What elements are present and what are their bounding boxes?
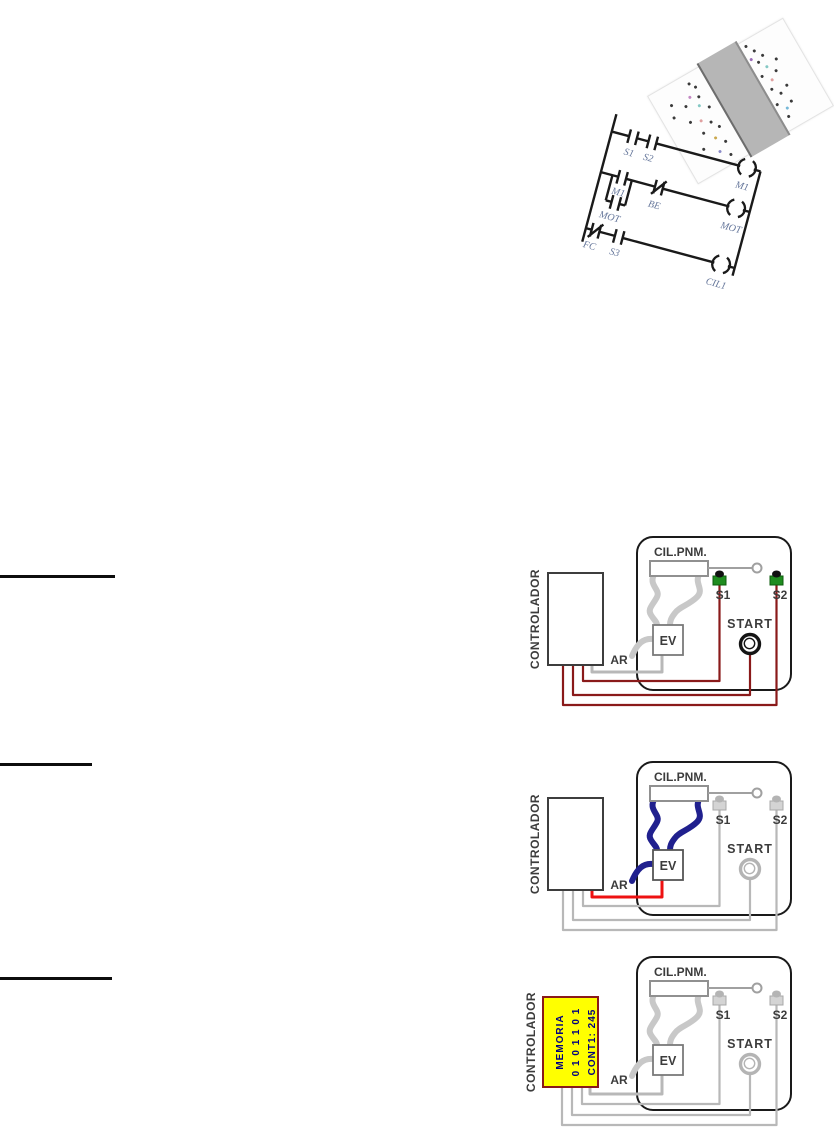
rod-tip: [753, 564, 762, 573]
controller-diagram-state1: CONTROLADOR CIL.PNM. S1 S2 START EV AR: [513, 527, 818, 722]
heading-underline-1: [0, 575, 115, 578]
memory-bits: 0 1 0 1 1 0 1: [571, 1008, 582, 1077]
air-label: AR: [610, 878, 628, 892]
ladder-label-cil1: CIL1: [704, 276, 727, 292]
sensor-s2-tip: [772, 796, 781, 803]
controller-diagram-state2: CONTROLADOR CIL.PNM. S1 S2 START EV AR: [513, 752, 818, 947]
pneumatic-cylinder: [650, 981, 708, 996]
pcb-components-right: [744, 44, 748, 48]
air-supply-tube: [632, 864, 653, 881]
controller-label: CONTROLADOR: [524, 992, 538, 1092]
controller-label: CONTROLADOR: [528, 794, 542, 894]
machine-panel: [637, 762, 791, 915]
pneumatic-cylinder: [650, 786, 708, 801]
sensor-s1-label: S1: [716, 813, 731, 827]
valve-label: EV: [660, 859, 677, 873]
start-button[interactable]: [741, 860, 760, 879]
sensor-s1-label: S1: [716, 1008, 731, 1022]
sensor-s2-tip: [772, 991, 781, 998]
air-supply-tube: [632, 1059, 653, 1076]
rod-tip: [753, 789, 762, 798]
ladder-label-be: BE: [647, 199, 662, 213]
heading-underline-3: [0, 977, 112, 980]
sensor-s1-label: S1: [716, 588, 731, 602]
memory-counter: CONT1: 245: [587, 1009, 598, 1076]
sensor-s2-tip: [772, 571, 781, 578]
rod-tip: [753, 984, 762, 993]
heading-underline-2: [0, 763, 92, 766]
controller-box: [548, 798, 603, 890]
ladder-label-m1-coil: M1: [733, 179, 750, 193]
start-label: START: [727, 842, 773, 856]
start-button[interactable]: [741, 1055, 760, 1074]
machine-panel: [637, 957, 791, 1110]
ladder-label-s1: S1: [622, 147, 635, 160]
ladder-label-s3: S3: [608, 246, 621, 259]
pneumatic-cylinder: [650, 561, 708, 576]
cylinder-label: CIL.PNM.: [654, 770, 707, 784]
valve-label: EV: [660, 1054, 677, 1068]
valve-label: EV: [660, 634, 677, 648]
cylinder-label: CIL.PNM.: [654, 965, 707, 979]
controller-box: [548, 573, 603, 665]
air-label: AR: [610, 1073, 628, 1087]
sensor-s1-tip: [715, 796, 724, 803]
ladder-label-s2: S2: [642, 152, 655, 165]
sensor-s2-label: S2: [773, 813, 788, 827]
ladder-label-mot-contact: MOT: [597, 209, 623, 226]
ladder-label-mot-coil: MOT: [718, 220, 744, 237]
start-label: START: [727, 1037, 773, 1051]
start-label: START: [727, 617, 773, 631]
sensor-s2-label: S2: [773, 588, 788, 602]
pcb-components-left: [687, 82, 691, 86]
controller-label: CONTROLADOR: [528, 569, 542, 669]
sensor-s1-tip: [715, 991, 724, 998]
sensor-s1-tip: [715, 571, 724, 578]
start-button[interactable]: [741, 635, 760, 654]
memory-title: MEMORIA: [555, 1014, 566, 1069]
sensor-s2-label: S2: [773, 1008, 788, 1022]
air-supply-tube: [632, 639, 653, 656]
air-label: AR: [610, 653, 628, 667]
cylinder-label: CIL.PNM.: [654, 545, 707, 559]
controller-diagram-state3: MEMORIA 0 1 0 1 1 0 1 CONT1: 245 CONTROL…: [513, 947, 818, 1142]
ladder-label-fc: FC: [581, 239, 597, 253]
machine-panel: [637, 537, 791, 690]
